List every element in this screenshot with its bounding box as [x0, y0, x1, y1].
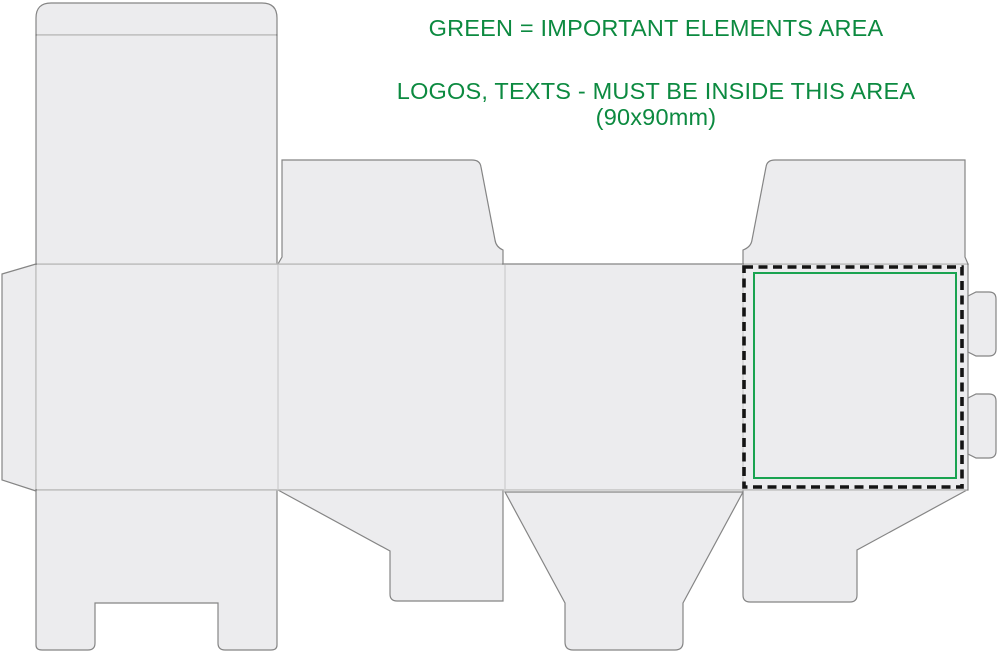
- lock-tab-top: [968, 292, 996, 356]
- bottom-flap-panel2: [278, 490, 503, 601]
- lock-tab-bottom: [968, 394, 996, 458]
- top-dust-flap-panel4: [743, 160, 968, 264]
- annotation-line2: LOGOS, TEXTS - MUST BE INSIDE THIS AREA: [300, 78, 1000, 105]
- dieline-canvas: GREEN = IMPORTANT ELEMENTS AREA LOGOS, T…: [0, 0, 1000, 651]
- annotation-line1: GREEN = IMPORTANT ELEMENTS AREA: [300, 15, 1000, 42]
- glue-flap-left: [2, 264, 36, 491]
- bottom-flap-panel1-legs: [36, 490, 277, 650]
- top-dust-flap-panel2: [278, 160, 503, 264]
- bottom-flap-panel4: [743, 490, 967, 602]
- annotation-line3: (90x90mm): [300, 104, 1000, 131]
- lid-tuck-flap: [36, 3, 277, 35]
- main-panel-row: [36, 264, 968, 490]
- bottom-tuck-flap-panel3: [505, 492, 743, 650]
- lid-panel: [36, 35, 277, 264]
